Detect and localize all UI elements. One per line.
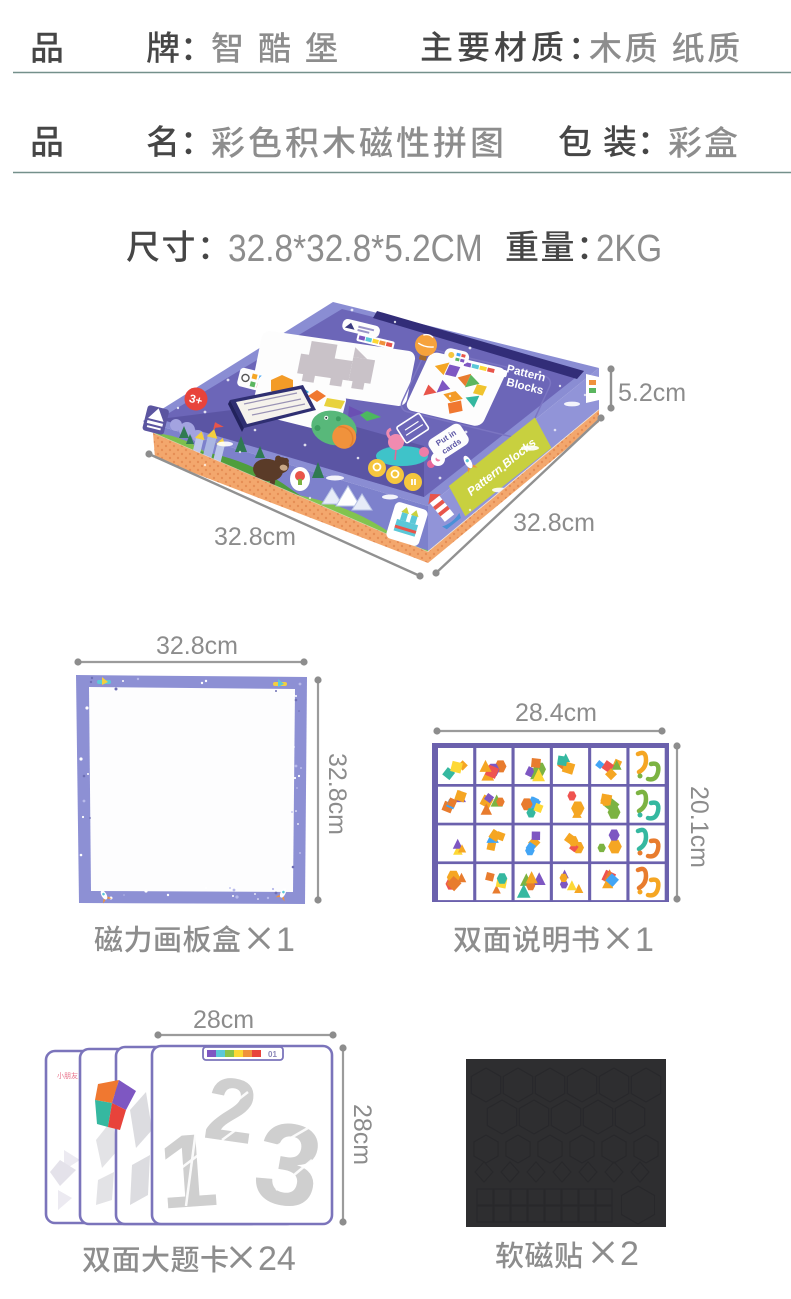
svg-text:01: 01 — [268, 1050, 277, 1059]
svg-text:小朋友: 小朋友 — [57, 1071, 78, 1081]
svg-text:1: 1 — [155, 1112, 221, 1232]
